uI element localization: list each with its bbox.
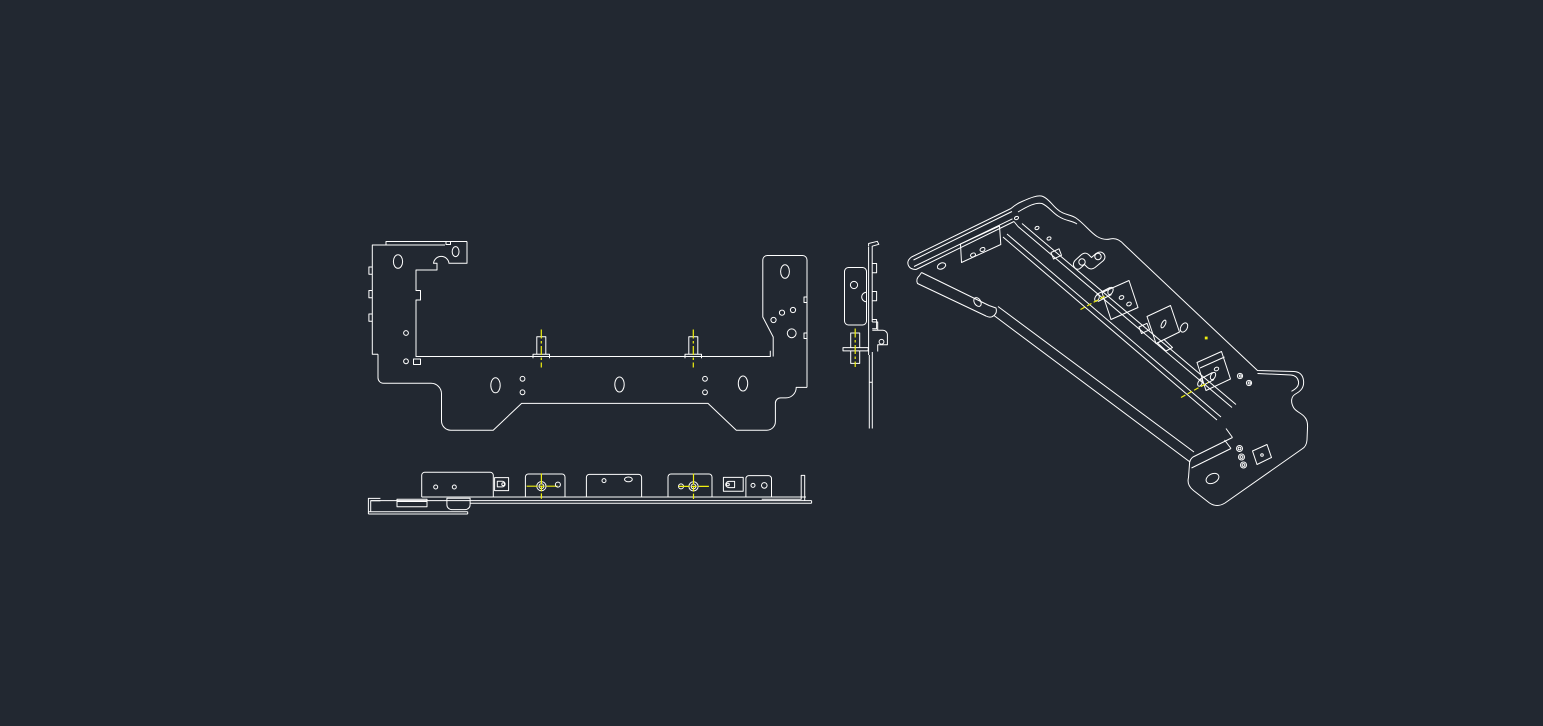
- iso-stud-2-base: [1209, 371, 1216, 380]
- bottom-stadium-slot: [447, 498, 470, 509]
- front-right-flange-holes: [771, 307, 796, 337]
- bottom-tab-mid: [586, 474, 641, 497]
- iso-bottom-tab-bracket-pin: [1261, 454, 1264, 457]
- side-left-bracket[interactable]: [845, 268, 867, 326]
- bottom-tab-2: [525, 474, 565, 497]
- iso-channel-bend-lines: [994, 203, 1236, 462]
- side-step-bracket: [872, 322, 887, 352]
- front-plate-holes: [520, 376, 707, 394]
- front-left-flange-outline[interactable]: [372, 242, 467, 355]
- front-right-flange-slot: [781, 265, 790, 279]
- front-plate-slot-3: [738, 376, 747, 391]
- iso-stud-2-centerline: [1181, 383, 1208, 398]
- iso-mid-tab-slot: [1160, 319, 1167, 328]
- iso-bracket-1-hole-2: [1126, 301, 1132, 306]
- iso-bracket-1-hole-1: [1119, 295, 1125, 300]
- iso-bottom-tab-bracket: [1253, 445, 1272, 465]
- iso-bracket-2-rings: [1237, 373, 1251, 385]
- iso-wing-clip-holes: [1079, 253, 1101, 265]
- bottom-latch-2-pin: [727, 483, 730, 486]
- iso-arm-lower-plate: [917, 273, 997, 318]
- iso-point-marker: [1205, 337, 1208, 340]
- iso-bottom-tab-fold: [1192, 429, 1233, 469]
- front-block-slot: [452, 247, 459, 257]
- front-left-edge-notches: [369, 267, 372, 321]
- iso-stud-1-base: [1107, 286, 1114, 295]
- bottom-tab-3: [668, 474, 712, 497]
- bottom-tab-1-holes: [434, 485, 457, 489]
- bottom-latch-1-pin: [502, 483, 505, 486]
- iso-right-edge-inner: [1258, 374, 1299, 392]
- side-tail: [869, 352, 872, 429]
- bottom-tab-4-holes: [751, 483, 767, 489]
- side-bracket-hole: [850, 281, 857, 288]
- bottom-tab-4: [746, 476, 772, 497]
- side-step-hole: [879, 339, 884, 344]
- front-view[interactable]: [369, 242, 807, 431]
- front-plate-slot-2: [615, 377, 624, 392]
- bottom-tab-mid-hole: [602, 479, 606, 483]
- iso-bracket-1: [1102, 281, 1138, 320]
- front-web-left-tab: [414, 359, 421, 365]
- front-plate-outline[interactable]: [378, 354, 807, 430]
- side-strip-tabs: [872, 264, 876, 329]
- iso-web-slot: [1179, 322, 1190, 334]
- iso-bottom-tab-slot: [1204, 471, 1220, 486]
- iso-arm-slot: [936, 262, 946, 271]
- iso-outline[interactable]: [1011, 196, 1308, 506]
- iso-face-hole-3: [1046, 236, 1051, 240]
- iso-face-hole-1: [1014, 216, 1019, 220]
- iso-arm-tab-hole-1: [970, 252, 976, 258]
- front-left-flange-holes: [404, 331, 409, 364]
- iso-mid-tab: [1147, 306, 1180, 352]
- bottom-hole-a: [555, 482, 560, 487]
- bottom-tab-mid-slot: [625, 477, 633, 482]
- front-right-flange-outline[interactable]: [763, 256, 807, 388]
- iso-bottom-tab-rings: [1237, 446, 1247, 469]
- drawing-svg: [0, 0, 1543, 726]
- front-left-flange-slot: [393, 255, 402, 269]
- side-strip[interactable]: [869, 241, 879, 355]
- side-view[interactable]: [843, 241, 887, 428]
- bottom-view[interactable]: [368, 472, 811, 514]
- iso-bracket-2-hole: [1214, 366, 1220, 371]
- bottom-tab-1: [422, 472, 494, 497]
- bottom-long-edges[interactable]: [368, 497, 811, 514]
- iso-face-hole-2: [1034, 226, 1039, 230]
- isometric-view[interactable]: [908, 196, 1308, 506]
- front-plate-slot-1: [491, 378, 500, 393]
- front-inner-profile-web-line[interactable]: [416, 242, 770, 357]
- side-bracket-d-slot: [862, 292, 867, 302]
- cad-canvas[interactable]: [0, 0, 1543, 726]
- iso-bracket-2: [1197, 352, 1231, 391]
